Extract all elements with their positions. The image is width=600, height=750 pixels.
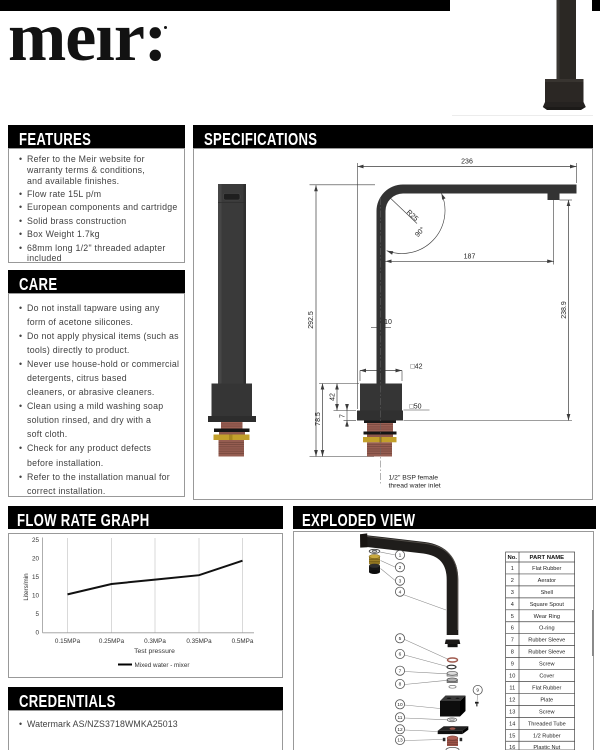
- svg-text:14: 14: [509, 721, 515, 727]
- svg-text:Plate: Plate: [540, 697, 553, 703]
- svg-text:7: 7: [399, 668, 402, 674]
- svg-text:5: 5: [35, 611, 39, 618]
- svg-text:0.25MPa: 0.25MPa: [99, 638, 125, 645]
- svg-text:1: 1: [511, 566, 514, 572]
- svg-text:Flat Rubber: Flat Rubber: [532, 686, 561, 692]
- svg-text:6: 6: [399, 652, 402, 658]
- svg-text:90°: 90°: [413, 225, 426, 238]
- svg-text:1/2 Rubber: 1/2 Rubber: [533, 733, 561, 739]
- svg-text:0.35MPa: 0.35MPa: [186, 638, 212, 645]
- svg-text:Threaded Tube: Threaded Tube: [528, 721, 566, 727]
- svg-text:10: 10: [32, 593, 40, 600]
- svg-text:7: 7: [340, 414, 347, 418]
- svg-text:292.5: 292.5: [308, 311, 315, 329]
- svg-text:2: 2: [511, 578, 514, 584]
- svg-text:Rubber Sleeve: Rubber Sleeve: [528, 638, 565, 644]
- svg-text:12: 12: [509, 697, 515, 703]
- svg-text:□42: □42: [411, 364, 423, 371]
- svg-text:0.15MPa: 0.15MPa: [55, 638, 81, 645]
- svg-text:Cover: Cover: [539, 674, 554, 680]
- svg-text:3: 3: [399, 578, 402, 584]
- svg-text:15: 15: [509, 733, 515, 739]
- svg-text:Rubber Sleeve: Rubber Sleeve: [528, 650, 565, 656]
- svg-text:236: 236: [461, 159, 473, 166]
- svg-text:6: 6: [511, 626, 514, 632]
- svg-text:Wear Ring: Wear Ring: [534, 614, 560, 620]
- svg-text:8: 8: [399, 682, 402, 688]
- svg-text:Aerator: Aerator: [538, 578, 556, 584]
- svg-text:5: 5: [511, 614, 514, 620]
- svg-text:1: 1: [399, 553, 402, 559]
- svg-text:3: 3: [511, 590, 514, 596]
- svg-text:78.5: 78.5: [315, 412, 322, 426]
- svg-text:10: 10: [509, 674, 515, 680]
- svg-text:4: 4: [511, 602, 514, 608]
- svg-text:Square Spout: Square Spout: [530, 602, 565, 608]
- svg-text:9: 9: [511, 662, 514, 668]
- svg-text:0: 0: [35, 630, 39, 637]
- svg-text:15: 15: [32, 574, 40, 581]
- svg-text:□50: □50: [410, 404, 422, 411]
- svg-text:PART NAME: PART NAME: [530, 555, 565, 561]
- svg-text:12: 12: [397, 727, 403, 733]
- svg-text:42: 42: [330, 393, 337, 401]
- svg-text:1/2" BSP female: 1/2" BSP female: [389, 475, 439, 482]
- svg-text:13: 13: [509, 709, 515, 715]
- svg-text:2: 2: [399, 565, 402, 571]
- svg-text:9: 9: [476, 688, 479, 694]
- svg-text:13: 13: [397, 738, 403, 744]
- svg-text:4: 4: [399, 589, 402, 595]
- svg-text:5: 5: [399, 636, 402, 642]
- svg-text:7: 7: [511, 638, 514, 644]
- svg-text:Flat Rubber: Flat Rubber: [532, 566, 561, 572]
- svg-text:Screw: Screw: [539, 662, 556, 668]
- svg-text:Shell: Shell: [541, 590, 553, 596]
- svg-text:Test pressure: Test pressure: [134, 648, 175, 655]
- svg-text:Liters/min: Liters/min: [23, 573, 30, 601]
- svg-text:25: 25: [32, 537, 40, 544]
- svg-text:Screw: Screw: [539, 709, 556, 715]
- svg-text:238.9: 238.9: [561, 301, 568, 319]
- svg-text:10: 10: [397, 702, 403, 708]
- svg-text:187: 187: [464, 253, 476, 260]
- svg-text:thread water inlet: thread water inlet: [389, 483, 441, 490]
- svg-text:10: 10: [384, 319, 392, 326]
- svg-text:11: 11: [509, 686, 515, 692]
- svg-text:Plastic Nut: Plastic Nut: [533, 745, 560, 750]
- svg-text:Mixed water - mixer: Mixed water - mixer: [135, 662, 190, 669]
- svg-text:0.3MPa: 0.3MPa: [144, 638, 166, 645]
- svg-text:8: 8: [511, 650, 514, 656]
- svg-text:0.5MPa: 0.5MPa: [232, 638, 254, 645]
- svg-text:11: 11: [398, 715, 403, 721]
- svg-text:20: 20: [32, 556, 40, 563]
- svg-text:No.: No.: [508, 555, 518, 561]
- svg-text:R25: R25: [405, 209, 419, 223]
- svg-text:16: 16: [509, 745, 515, 750]
- svg-text:O-ring: O-ring: [539, 626, 555, 632]
